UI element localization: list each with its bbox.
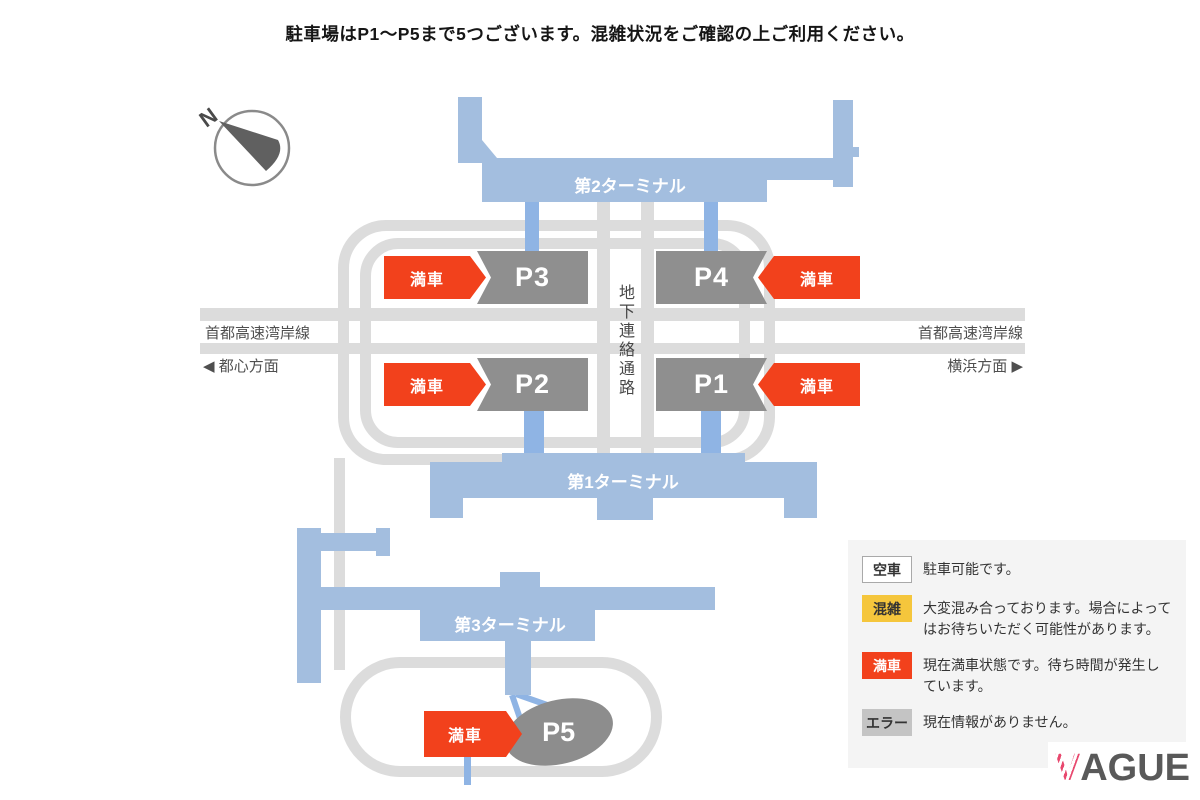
west-access-road (334, 458, 345, 670)
terminal-2-building (833, 100, 853, 187)
terminal-1-building (784, 462, 817, 518)
t1-p1-walkway (701, 410, 721, 454)
t2-p3-walkway (525, 200, 539, 253)
terminal-3-building (500, 572, 540, 587)
center-road-left (597, 202, 610, 458)
terminal-3-label: 第3ターミナル (420, 611, 600, 636)
terminal-2-label: 第2ターミナル (520, 172, 740, 197)
legend-badge-crowded: 混雑 (862, 595, 912, 622)
terminal-2-building (853, 147, 859, 157)
center-road-right (641, 202, 654, 458)
highway-label-right: 首都高速湾岸線 (903, 322, 1023, 343)
legend-badge-error: エラー (862, 709, 912, 736)
terminal-1-label: 第1ターミナル (513, 468, 733, 493)
parking-p4-box: P4 (656, 251, 767, 304)
terminal-3-building (376, 528, 390, 556)
t1-p2-walkway (524, 410, 544, 454)
direction-label-city: ◀ 都心方面 (203, 355, 279, 376)
status-badge-p3: 満車 (384, 256, 486, 299)
status-badge-p5: 満車 (424, 711, 522, 757)
parking-p1-label: P1 (694, 369, 729, 400)
terminal-3-building (505, 641, 531, 695)
parking-p5-label: P5 (542, 717, 575, 748)
compass-north-label: N (198, 103, 222, 133)
parking-status-page: { "title": "駐車場はP1〜P5まで5つございます。混雑状況をご確認の… (0, 0, 1200, 800)
vague-logo-v: V (1055, 747, 1080, 790)
status-badge-p4: 満車 (758, 256, 860, 299)
terminal-1-building (430, 462, 463, 518)
legend-item-crowded: 混雑 大変混み合っております。場合によってはお待ちいただく可能性があります。 (862, 595, 1172, 640)
legend-badge-vacant: 空車 (862, 556, 912, 583)
legend-desc-full: 現在満車状態です。待ち時間が発生しています。 (923, 652, 1172, 697)
parking-p3-box: P3 (477, 251, 588, 304)
parking-p3-label: P3 (515, 262, 550, 293)
vague-logo: VAGUE (1048, 742, 1190, 794)
terminal-2-building (482, 140, 497, 158)
direction-label-yokohama: 横浜方面 ▶ (903, 355, 1023, 376)
p5-south-link (464, 757, 471, 785)
status-badge-p2: 満車 (384, 363, 486, 406)
terminal-2-building (767, 158, 843, 180)
status-badge-p1: 満車 (758, 363, 860, 406)
page-title: 駐車場はP1〜P5まで5つございます。混雑状況をご確認の上ご利用ください。 (0, 21, 1200, 46)
underground-passage-label: 地下連絡通路 (612, 284, 636, 398)
legend-item-vacant: 空車 駐車可能です。 (862, 556, 1172, 583)
legend-desc-crowded: 大変混み合っております。場合によってはお待ちいただく可能性があります。 (923, 595, 1172, 640)
legend-item-full: 満車 現在満車状態です。待ち時間が発生しています。 (862, 652, 1172, 697)
parking-p2-label: P2 (515, 369, 550, 400)
highway-label-left: 首都高速湾岸線 (205, 322, 310, 343)
legend-badge-full: 満車 (862, 652, 912, 679)
vague-logo-rest: AGUE (1080, 747, 1190, 790)
terminal-1-building (597, 498, 653, 520)
terminal-2-building (458, 97, 482, 163)
terminal-3-building (297, 587, 715, 610)
parking-p2-box: P2 (477, 358, 588, 411)
legend-desc-error: 現在情報がありません。 (923, 709, 1077, 736)
terminal-3-building (321, 533, 383, 551)
t2-p4-walkway (704, 200, 718, 253)
legend-desc-vacant: 駐車可能です。 (923, 556, 1020, 583)
parking-p1-box: P1 (656, 358, 767, 411)
parking-p4-label: P4 (694, 262, 729, 293)
legend-panel: 空車 駐車可能です。 混雑 大変混み合っております。場合によってはお待ちいただく… (848, 540, 1186, 768)
legend-item-error: エラー 現在情報がありません。 (862, 709, 1172, 736)
compass-icon: N (198, 95, 298, 195)
